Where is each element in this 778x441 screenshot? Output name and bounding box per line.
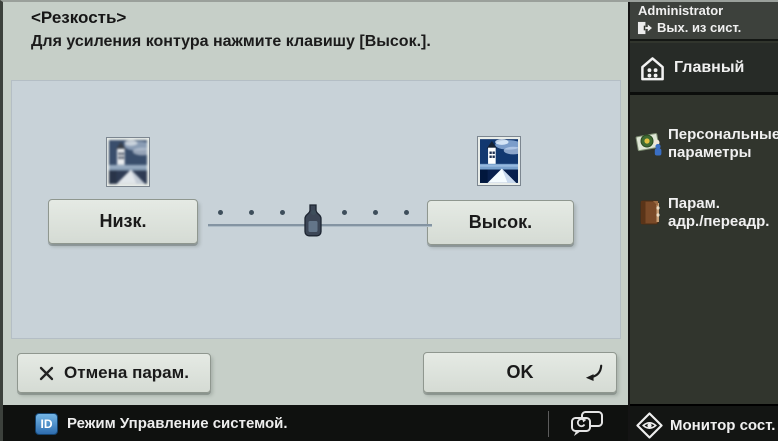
ok-button[interactable]: OK bbox=[423, 352, 617, 393]
status-monitor-button[interactable]: Монитор сост. bbox=[630, 404, 778, 441]
sidebar: Administrator Вых. из сист. bbox=[628, 0, 778, 441]
address-settings-label: Парам. адр./переадр. bbox=[668, 195, 769, 231]
sidebar-item-home[interactable]: Главный bbox=[630, 43, 778, 95]
system-mode-text: Режим Управление системой. bbox=[67, 415, 288, 432]
home-icon bbox=[639, 56, 666, 86]
printer-touchscreen: <Резкость> Для усиления контура нажмите … bbox=[0, 0, 778, 441]
logout-label: Вых. из сист. bbox=[657, 20, 741, 35]
slider-dot bbox=[249, 210, 254, 215]
preview-low-image bbox=[106, 137, 150, 187]
return-arrow-icon bbox=[584, 363, 604, 386]
sharpness-panel: <Резкость> Для усиления контура нажмите … bbox=[3, 2, 628, 405]
slider-dot bbox=[342, 210, 347, 215]
status-bar: ID Режим Управление системой. bbox=[3, 405, 628, 441]
user-name: Administrator bbox=[638, 3, 723, 18]
ok-label: OK bbox=[507, 362, 534, 383]
slider-dot bbox=[311, 210, 316, 215]
slider-dot bbox=[218, 210, 223, 215]
cancel-settings-button[interactable]: Отмена парам. bbox=[17, 353, 211, 393]
slider-dot bbox=[404, 210, 409, 215]
sidebar-item-address-settings[interactable]: Парам. адр./переадр. bbox=[630, 195, 778, 235]
personal-settings-label: Персональные параметры bbox=[668, 126, 778, 162]
status-monitor-icon bbox=[636, 412, 663, 441]
language-switch-icon[interactable] bbox=[569, 410, 607, 438]
logout-button[interactable]: Вых. из сист. bbox=[637, 20, 741, 35]
session-block: Administrator Вых. из сист. bbox=[630, 0, 778, 41]
page-instruction: Для усиления контура нажмите клавишу [Вы… bbox=[31, 33, 431, 51]
address-book-icon bbox=[639, 199, 661, 231]
slider-dot bbox=[373, 210, 378, 215]
home-label: Главный bbox=[674, 59, 744, 77]
page-title: <Резкость> bbox=[31, 8, 126, 28]
slider-knob[interactable] bbox=[304, 204, 322, 237]
logout-icon bbox=[637, 21, 652, 35]
preview-high-image bbox=[477, 136, 521, 186]
high-button[interactable]: Высок. bbox=[427, 200, 574, 245]
cancel-label: Отмена парам. bbox=[64, 363, 189, 383]
low-button[interactable]: Низк. bbox=[48, 199, 198, 244]
statusbar-divider bbox=[548, 411, 549, 437]
x-icon bbox=[39, 366, 54, 381]
slider-dot bbox=[280, 210, 285, 215]
status-monitor-label: Монитор сост. bbox=[670, 417, 775, 434]
sidebar-item-personal-settings[interactable]: Персональные параметры bbox=[630, 126, 778, 166]
personal-settings-icon bbox=[635, 130, 665, 163]
id-badge-icon: ID bbox=[35, 413, 58, 435]
